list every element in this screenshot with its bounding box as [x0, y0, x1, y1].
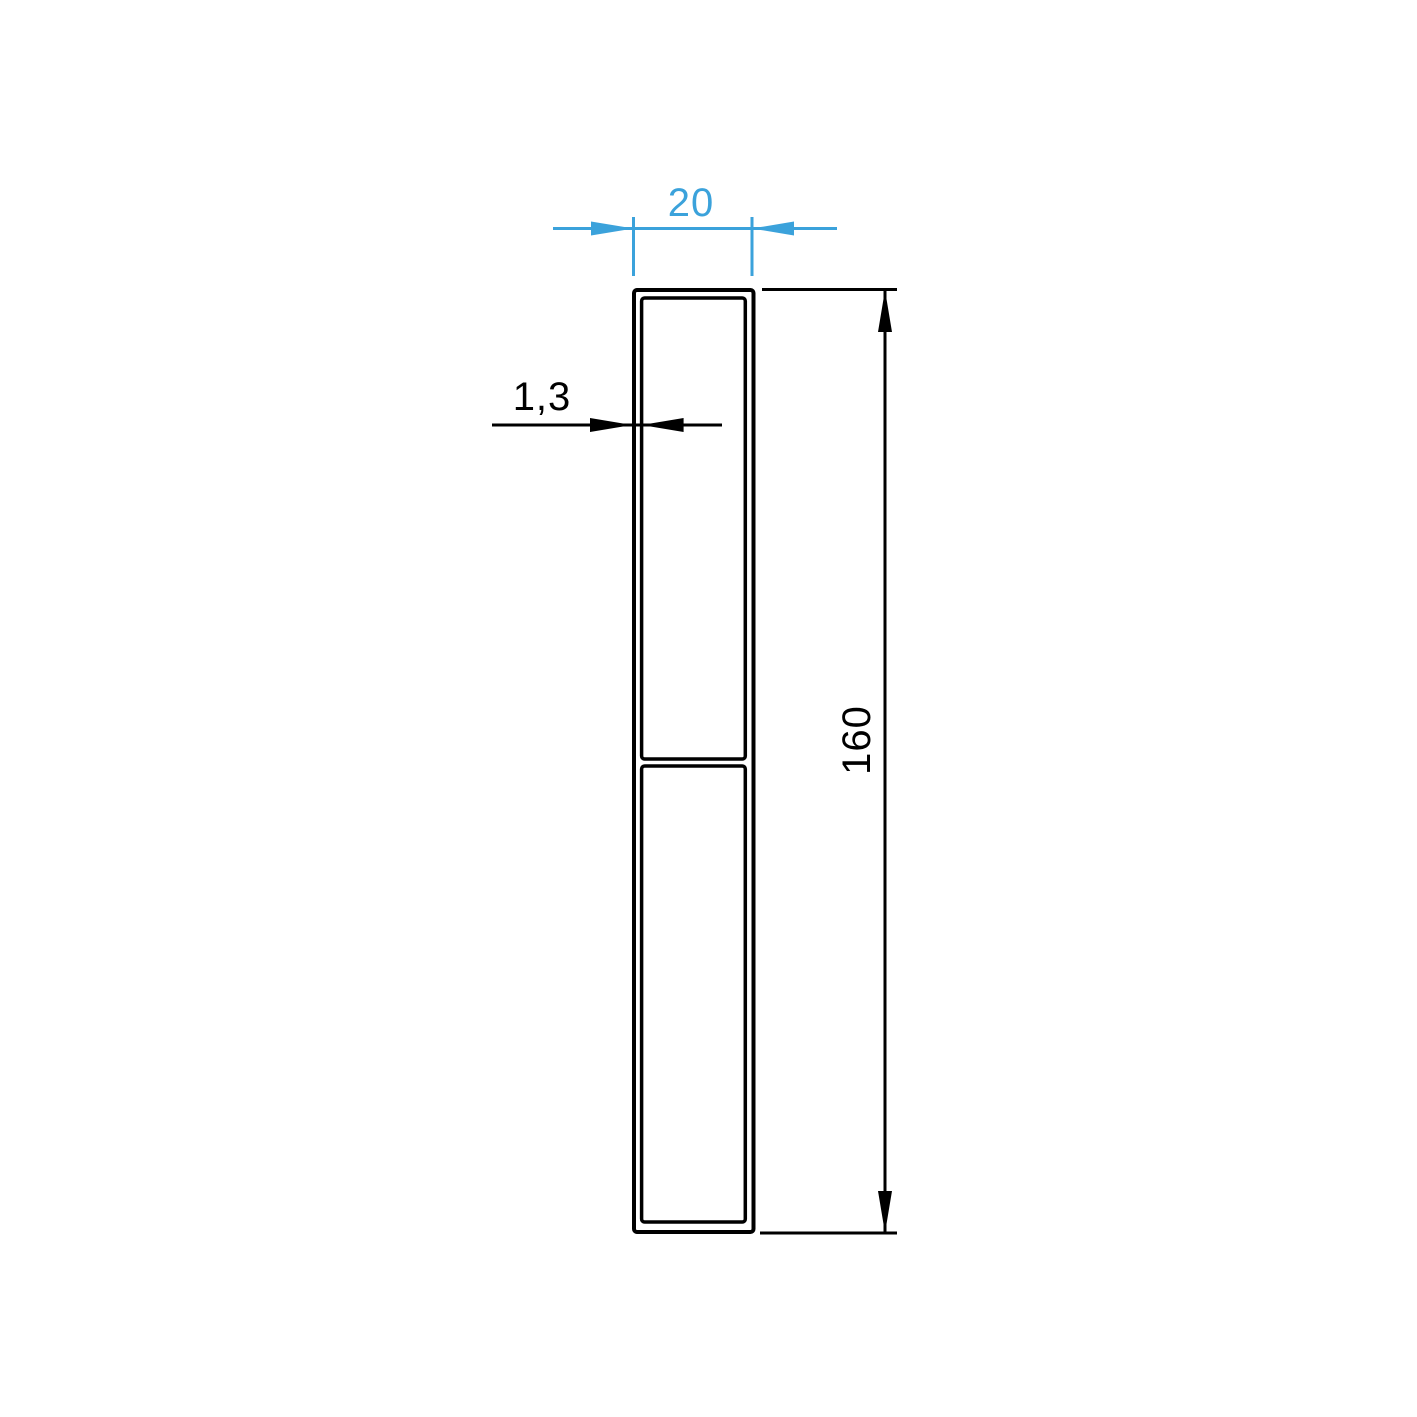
wall-thickness-arrowhead-right-icon	[642, 418, 684, 432]
width-arrowhead-right-icon	[752, 222, 794, 236]
technical-drawing-canvas: 20 1,3 160	[0, 0, 1417, 1417]
height-arrowhead-top-icon	[878, 290, 892, 332]
dimension-wall-thickness: 1,3	[492, 375, 722, 432]
width-dimension-label: 20	[668, 181, 715, 225]
height-dimension-label: 160	[835, 705, 879, 775]
profile-chamber-top	[642, 298, 746, 759]
width-arrowhead-left-icon	[591, 222, 634, 236]
dimension-height: 160	[760, 290, 897, 1234]
wall-thickness-arrowhead-left-icon	[590, 418, 632, 432]
wall-thickness-dimension-label: 1,3	[513, 375, 572, 419]
drawing-page: 20 1,3 160	[0, 0, 1417, 1417]
height-arrowhead-bottom-icon	[878, 1191, 892, 1233]
dimension-width: 20	[553, 181, 837, 276]
profile-outer-contour	[634, 290, 754, 1232]
profile-chamber-bottom	[642, 766, 746, 1222]
profile-cross-section	[634, 290, 754, 1232]
